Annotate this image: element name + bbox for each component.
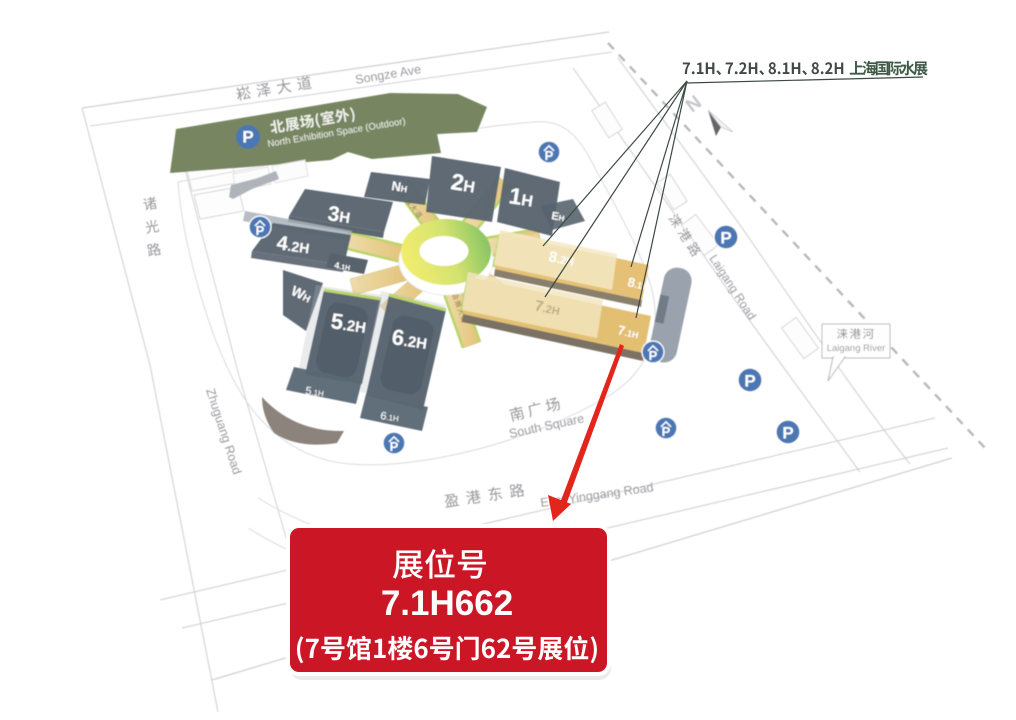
svg-text:Laigang River: Laigang River — [827, 343, 886, 354]
svg-text:P: P — [242, 128, 253, 147]
svg-text:P: P — [720, 228, 731, 247]
svg-text:P: P — [256, 223, 265, 238]
svg-text:P: P — [744, 371, 755, 390]
svg-text:P: P — [782, 423, 793, 442]
svg-text:P: P — [662, 424, 671, 439]
svg-text:P: P — [649, 348, 658, 363]
svg-text:7.1H662: 7.1H662 — [381, 584, 513, 623]
svg-text:P: P — [390, 439, 399, 454]
svg-text:P: P — [545, 148, 554, 163]
